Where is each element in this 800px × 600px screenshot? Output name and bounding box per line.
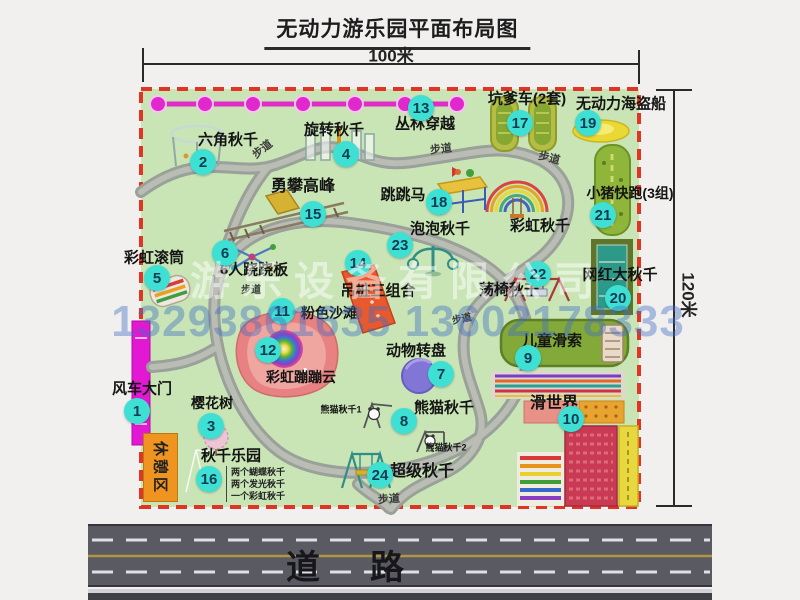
extra-label-2: 熊猫秋千2 [425,444,466,453]
facility-marker-4: 4 [333,141,359,167]
swing-note: 两个发光秋千 [231,478,285,490]
facility-label-17: 坑爹车(2套) [488,92,566,107]
facility-marker-16: 16 [196,466,222,492]
swing-park-notes: 两个蝴蝶秋千两个发光秋千一个彩虹秋千 [226,466,285,502]
swing-note: 两个蝴蝶秋千 [231,466,285,478]
facility-marker-10: 10 [558,406,584,432]
facility-label-4: 旋转秋千 [304,123,364,138]
facility-marker-9: 9 [515,345,541,371]
facility-label-3: 樱花树 [191,396,233,410]
path-label-1: 步道 [429,143,452,156]
facility-label-2: 六角秋千 [198,133,258,148]
facility-marker-7: 7 [428,361,454,387]
facility-label-21: 小猪快跑(3组) [586,186,673,200]
facility-marker-19: 19 [575,110,601,136]
facility-label-8: 熊猫秋千 [414,401,474,416]
facility-marker-24: 24 [367,462,393,488]
facility-label-23: 泡泡秋千 [410,222,470,237]
path-label-5: 步道 [378,494,401,507]
facility-marker-13: 13 [408,95,434,121]
facility-marker-8: 8 [391,408,417,434]
watermark-phone: 13293861635 13602178333 [111,297,685,347]
facility-marker-1: 1 [124,398,150,424]
facility-label-16: 秋千乐园 [201,449,261,464]
facility-marker-21: 21 [590,202,616,228]
road-label: 道 路 [286,540,412,589]
facility-marker-15: 15 [300,201,326,227]
playground-map-image: 无动力游乐园平面布局图 100米 120米 休憩区 风车大门1六角秋千2樱花树3… [0,0,800,600]
facility-marker-3: 3 [198,413,224,439]
facility-label-12: 彩虹蹦蹦云 [266,370,336,384]
facility-label-5: 彩虹滚筒 [124,251,184,266]
extra-label-1: 熊猫秋千1 [320,406,361,415]
facility-label-1: 风车大门 [112,382,172,397]
dimension-width-label: 100米 [368,42,413,67]
facility-marker-18: 18 [426,189,452,215]
facility-marker-5: 5 [144,265,170,291]
rest-area-box: 休憩区 [143,433,178,502]
extra-label-0: 彩虹秋千 [510,219,570,234]
facility-label-18: 跳跳马 [380,188,425,203]
facility-marker-2: 2 [190,149,216,175]
rest-area-label: 休憩区 [150,440,171,494]
swing-note: 一个彩虹秋千 [231,490,285,502]
facility-marker-17: 17 [507,110,533,136]
facility-label-15: 勇攀高峰 [271,179,335,195]
facility-label-24: 超级秋千 [390,464,454,480]
